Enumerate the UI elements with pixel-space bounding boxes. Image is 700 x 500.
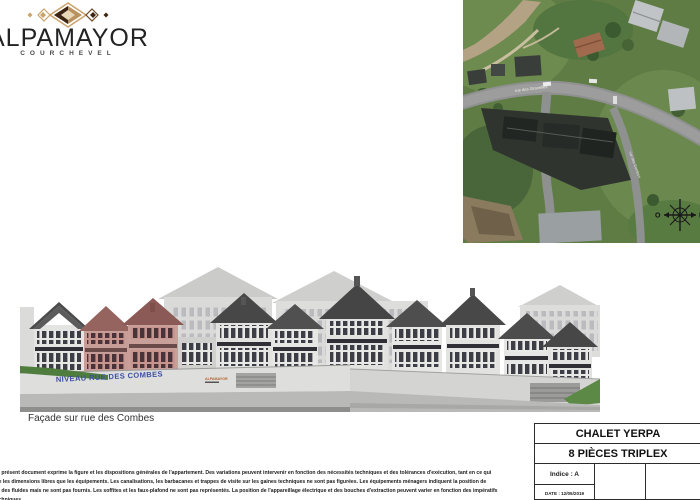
- disclaimer-line: Le présent document exprime la figure et…: [0, 469, 491, 478]
- title-block-project-row: CHALET YERPA: [535, 424, 700, 444]
- chalet: [29, 302, 89, 373]
- alpamayor-logo: ALPAMAYOR COURCHEVEL: [0, 0, 148, 62]
- compass-west-label: O: [655, 213, 661, 220]
- disclaimer-line: me les dimensions libres que les équipem…: [0, 478, 491, 487]
- chalet: [440, 288, 506, 375]
- title-block-divider: [645, 464, 646, 500]
- disclaimer-line: ge des fluides mais ne sont pas fournis.…: [0, 487, 491, 496]
- low-building-windows: [182, 343, 212, 365]
- unit-name: 8 PIÈCES TRIPLEX: [535, 448, 700, 460]
- garage-door: [236, 373, 276, 388]
- disclaimer-line: techniques.: [0, 496, 491, 500]
- disclaimer-text: Le présent document exprime la figure et…: [0, 469, 506, 500]
- title-block-unit-row: 8 PIÈCES TRIPLEX: [535, 444, 700, 464]
- project-name: CHALET YERPA: [535, 428, 700, 440]
- indice-cell: Indice : A: [535, 464, 595, 485]
- plan-page: ALPAMAYOR COURCHEVEL: [0, 0, 700, 500]
- title-block: CHALET YERPA 8 PIÈCES TRIPLEX Indice : A…: [534, 423, 700, 500]
- logo-subtitle-text: COURCHEVEL: [0, 50, 148, 57]
- date-cell: DATE : 12/05/2019: [535, 485, 595, 500]
- aerial-map-image: rue des Gravelles rue des Combes O E: [463, 0, 700, 243]
- elevation-caption: Façade sur rue des Combes: [28, 413, 154, 424]
- logo-brand-text: ALPAMAYOR: [0, 24, 148, 53]
- aerial-map-svg: rue des Gravelles rue des Combes O E: [463, 0, 700, 243]
- elevation-svg: NIVEAU RUE DES COMBES ALPAMAYOR: [20, 267, 600, 413]
- building-sign-label: ALPAMAYOR: [205, 377, 228, 381]
- elevation-drawing: NIVEAU RUE DES COMBES ALPAMAYOR: [20, 267, 600, 413]
